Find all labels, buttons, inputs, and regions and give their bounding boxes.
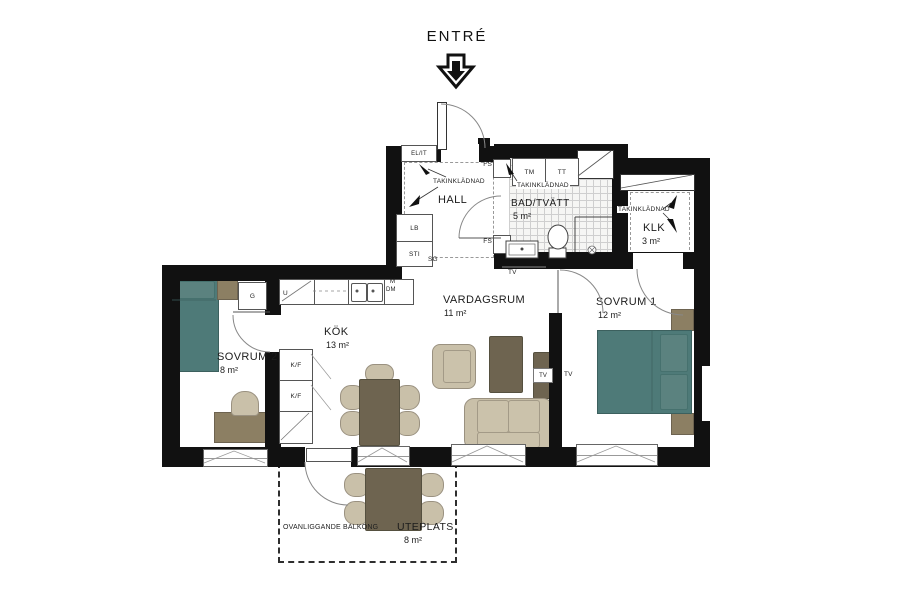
bed-bedroom2-pillow <box>174 281 215 299</box>
floor-plan: ENTRÉ <box>0 0 900 600</box>
el-it-label: EL/IT <box>411 151 427 157</box>
counter-divider <box>384 280 385 304</box>
fs-box-bottom <box>493 235 511 254</box>
klk-door-opening <box>633 253 683 269</box>
room-area-patio: 8 m² <box>404 535 422 545</box>
g-label: G <box>250 293 255 300</box>
room-label-living: VARDAGSRUM <box>443 294 525 306</box>
bed-bedroom1-pillow-1 <box>660 334 688 372</box>
room-area-bath: 5 m² <box>513 211 531 221</box>
cabinet-door-diagonal <box>311 385 331 410</box>
window-bedroom1 <box>576 444 658 466</box>
room-area-bedroom1: 12 m² <box>598 310 621 320</box>
wall <box>162 265 180 467</box>
window-kitchen <box>357 446 410 466</box>
dishwasher-label: DM <box>386 287 396 293</box>
bed-bedroom1-pillow-2 <box>660 374 688 410</box>
room-area-living: 11 m² <box>444 308 466 318</box>
bedroom2-door-arc <box>233 315 270 352</box>
lb-closet: LB <box>396 214 433 243</box>
ceiling-cladding-label-bath: TAKINKLÄDNAD <box>516 182 570 189</box>
fs-box-top <box>493 159 511 178</box>
shaft-bathroom <box>577 150 614 179</box>
exterior-wall-recess <box>702 366 710 421</box>
sofa-cushion-right <box>508 400 540 433</box>
shaft-klk <box>620 174 695 191</box>
balcony-above-label: OVANLIGGANDE BALKONG <box>283 524 378 531</box>
ceiling-cladding-label-hall: TAKINKLÄDNAD <box>433 178 485 185</box>
fridge-freezer-1: K/F <box>279 349 313 382</box>
fridge-freezer-2: K/F <box>279 380 313 413</box>
tv-label-bedroom1: TV <box>564 371 573 378</box>
nightstand-bedroom2 <box>217 278 238 300</box>
sofa-cushion-left <box>477 400 509 433</box>
room-area-kitchen: 13 m² <box>326 340 349 350</box>
tt-label: TT <box>558 169 567 176</box>
tm-label: TM <box>525 169 535 176</box>
kf-label-2: K/F <box>290 393 301 400</box>
tv-label-hall-wall: TV <box>508 269 517 276</box>
tv-outlet-living: TV <box>533 368 553 383</box>
room-area-klk: 3 m² <box>642 236 660 246</box>
entry-label: ENTRÉ <box>420 28 494 45</box>
sti-label: STI <box>409 251 420 258</box>
sink-basin-left <box>351 283 367 302</box>
sti-closet: STI <box>396 241 433 267</box>
counter-divider <box>348 280 349 304</box>
cabinet-door-diagonal <box>311 354 331 379</box>
coffee-table <box>489 336 523 393</box>
nightstand-bedroom1-bottom <box>671 413 694 435</box>
armchair-seat <box>443 350 471 383</box>
room-label-bedroom2: SOVRUM 2 <box>217 351 278 363</box>
tv-label-living: TV <box>539 373 547 379</box>
el-it-cabinet: EL/IT <box>401 145 437 162</box>
window-bedroom2 <box>203 449 268 467</box>
entry-arrow-core-icon <box>447 61 465 81</box>
room-label-kitchen: KÖK <box>324 326 348 338</box>
dining-table <box>359 379 400 446</box>
fs-label-top: FS <box>474 161 492 168</box>
entry-door-leaf <box>437 102 447 150</box>
balcony-door-leaf <box>306 448 352 462</box>
nightstand-bedroom1-top <box>671 309 694 331</box>
bathroom-door-opening <box>494 178 509 235</box>
room-label-bedroom1: SOVRUM 1 <box>596 296 657 308</box>
room-label-bath: BAD/TVÄTT <box>511 198 570 209</box>
entry-arrow-icon <box>439 55 473 87</box>
room-label-klk: KLK <box>643 222 665 234</box>
kf-label-1: K/F <box>290 362 301 369</box>
room-label-patio: UTEPLATS <box>397 521 454 533</box>
room-area-bedroom2: 8 m² <box>220 365 238 375</box>
tall-cabinet <box>279 411 313 444</box>
ceiling-cladding-label-klk: TAKINKLÄDNAD <box>617 206 671 213</box>
window-living <box>451 444 526 466</box>
entry-door-stop <box>478 138 490 150</box>
sg-label: SG <box>428 256 438 263</box>
u-label: U <box>283 290 288 297</box>
wardrobe-bedroom2: G <box>238 282 267 310</box>
micro-label: M <box>390 279 395 285</box>
room-label-hall: HALL <box>438 194 467 206</box>
sink-basin-right <box>367 283 383 302</box>
counter-divider <box>314 280 315 304</box>
fs-label-bottom: FS <box>474 238 492 245</box>
desk-chair-bedroom2 <box>231 391 259 416</box>
lb-label: LB <box>410 225 419 232</box>
desk-bedroom2 <box>214 412 270 443</box>
